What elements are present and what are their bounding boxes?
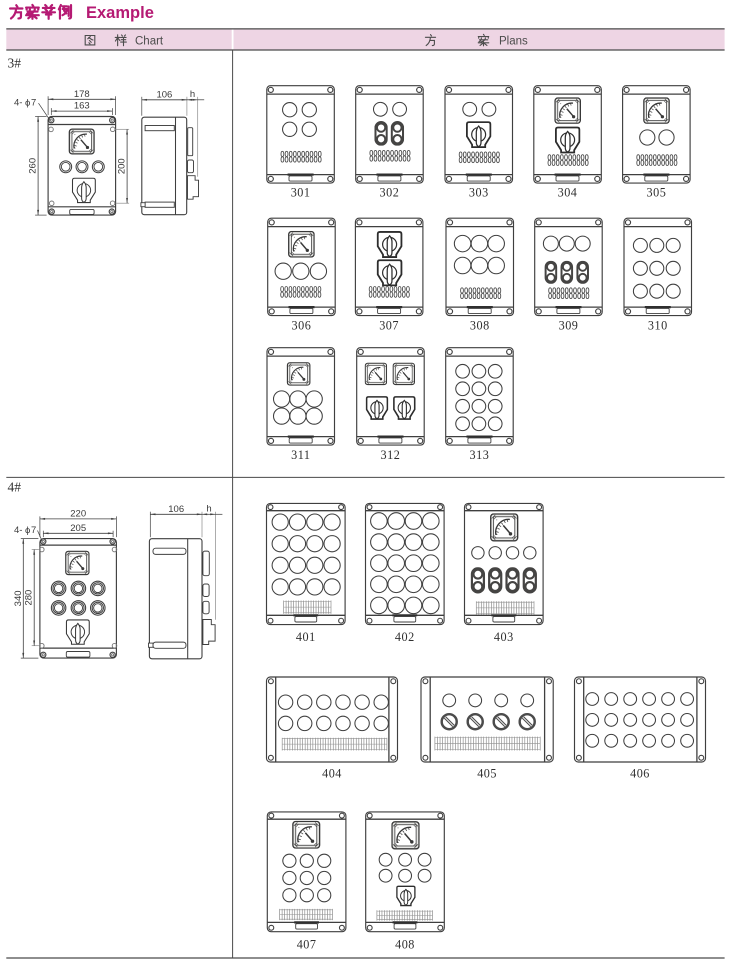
svg-text:303: 303 [469,185,489,199]
svg-text:305: 305 [647,185,667,199]
svg-text:7: 7 [31,525,36,536]
svg-text:4-: 4- [14,98,22,109]
svg-text:163: 163 [74,101,90,112]
svg-text:307: 307 [379,319,399,333]
svg-text:312: 312 [381,448,401,462]
svg-text:306: 306 [292,319,312,333]
svg-text:106: 106 [168,504,184,515]
svg-text:106: 106 [156,89,172,100]
svg-text:280: 280 [24,590,35,606]
svg-text:7: 7 [31,98,36,109]
svg-text:304: 304 [558,185,578,199]
svg-text:Chart: Chart [135,36,164,48]
svg-text:309: 309 [559,319,579,333]
svg-text:313: 313 [470,448,490,462]
svg-text:ϕ: ϕ [25,525,30,536]
svg-text:3#: 3# [8,56,22,71]
svg-text:401: 401 [296,630,316,644]
svg-text:402: 402 [395,630,415,644]
svg-text:178: 178 [74,89,90,100]
svg-text:311: 311 [291,448,310,462]
svg-text:Example: Example [86,4,154,22]
svg-text:Plans: Plans [499,36,528,48]
svg-text:301: 301 [291,185,311,199]
svg-text:205: 205 [70,523,86,534]
svg-text:200: 200 [117,158,128,174]
svg-text:404: 404 [322,767,342,781]
svg-text:220: 220 [70,508,86,519]
svg-text:408: 408 [395,938,415,952]
svg-text:407: 407 [297,938,317,952]
svg-text:403: 403 [494,630,514,644]
svg-text:308: 308 [470,319,490,333]
svg-text:340: 340 [13,590,24,606]
svg-text:4-: 4- [14,525,22,536]
svg-text:h: h [206,504,211,515]
svg-text:405: 405 [477,767,497,781]
svg-text:260: 260 [28,158,39,174]
svg-text:4#: 4# [8,480,22,495]
svg-text:310: 310 [648,319,668,333]
svg-text:406: 406 [630,767,650,781]
svg-text:ϕ: ϕ [25,98,30,109]
svg-text:h: h [190,89,195,100]
svg-text:302: 302 [380,185,400,199]
